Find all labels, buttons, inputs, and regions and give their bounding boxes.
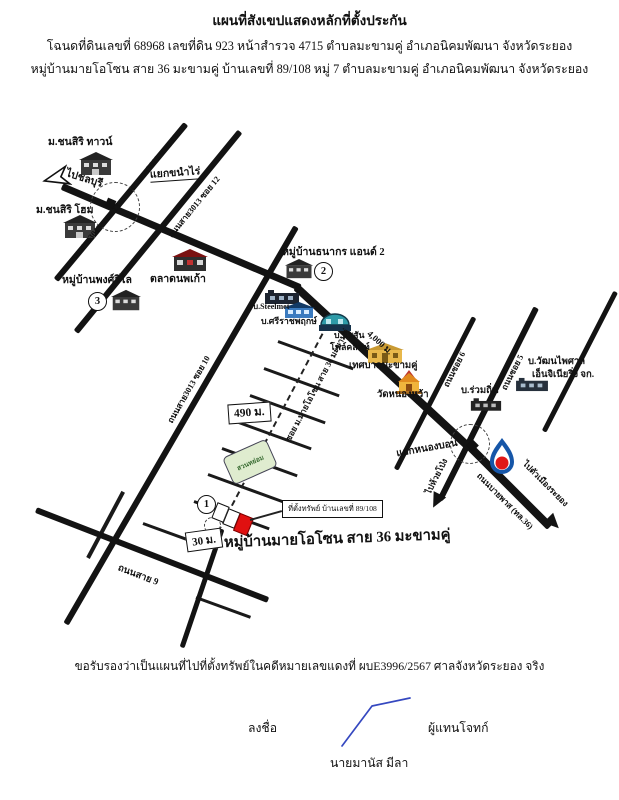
- map-document-page: แผนที่สังเขปแสดงหลักที่ตั้งประกัน โฉนดที…: [0, 0, 619, 800]
- ptt-gas-station-icon: [487, 437, 517, 477]
- sign-label: ลงชื่อ: [248, 722, 277, 735]
- distance-490-box: 490 ม.: [227, 402, 271, 425]
- phongwilai-number-badge: 3: [88, 292, 107, 311]
- thanakorn-number-badge: 2: [314, 262, 333, 281]
- ruamthin-label: บ.ร่วมถิ่น: [461, 386, 498, 396]
- wat-nongwa-label: วัดหนองหว้า: [377, 390, 429, 400]
- factory-icon: [470, 396, 502, 413]
- chonsiri-home-label: ม.ชนสิริ โฮม: [36, 205, 94, 217]
- signer-name: นายมานัส มีลา: [330, 757, 408, 770]
- address-info-line: หมู่บ้านมายโอโซน สาย 36 มะขามคู่ บ้านเลข…: [0, 63, 619, 77]
- thanakorn-label: หมู่บ้านธนากร แอนด์ 2: [282, 247, 385, 259]
- tessaban-label: เทศบาลมะขามคู่: [349, 361, 418, 371]
- yaek-khanamrai-label: แยกขนำไร่: [150, 166, 201, 182]
- callout-leader-line: [250, 510, 282, 520]
- park-label: สวนหย่อม: [235, 451, 266, 473]
- deed-info-line: โฉนดที่ดินเลขที่ 68968 เลขที่ดิน 923 หน้…: [0, 40, 619, 54]
- sriracha-pruek-label: บ.ศรีราชพฤกษ์: [261, 317, 317, 327]
- building-icon: [110, 289, 142, 312]
- park-area: สวนหย่อม: [222, 439, 278, 486]
- to-rayong-arrowhead: [543, 513, 564, 534]
- steelmet-label: บ.Steelmet: [253, 303, 289, 312]
- ozone-village-title: หมู่บ้านมายโอโซน สาย 36 มะขามคู่: [224, 527, 451, 551]
- wattana-label-1: บ.วัฒนไพศาล: [528, 357, 585, 367]
- road-soi13-label-upper: ถนนสาย3013 ซอย 13: [124, 132, 180, 196]
- phongwilai-label: หมู่บ้านพงศ์วิไล: [62, 275, 132, 287]
- street: [195, 596, 251, 619]
- certification-line: ขอรับรองว่าเป็นแผนที่ไปที่ตั้งทรัพย์ในคด…: [0, 660, 619, 673]
- page-title: แผนที่สังเขปแสดงหลักที่ตั้งประกัน: [0, 14, 619, 29]
- signature-stroke: [336, 692, 416, 752]
- building-icon: [284, 258, 314, 280]
- wattana-label-2: เอ็นจิเนียริ่ง จก.: [532, 370, 594, 380]
- spot-number-badge: 1: [197, 495, 216, 514]
- talad-noppakao-label: ตลาดนพเก้า: [150, 274, 206, 286]
- yaek-nongbon-label: แยกหนองบอน: [396, 438, 459, 460]
- market-icon: [172, 249, 208, 274]
- property-callout-box: ที่ตั้งทรัพย์ บ้านเลขที่ 89/108: [282, 500, 383, 518]
- chonsiri-town-label: ม.ชนสิริ ทาวน์: [48, 137, 112, 149]
- road-sai9-label: ถนนสาย 9: [116, 563, 159, 588]
- plaintiff-representative-label: ผู้แทนโจทก์: [428, 722, 488, 735]
